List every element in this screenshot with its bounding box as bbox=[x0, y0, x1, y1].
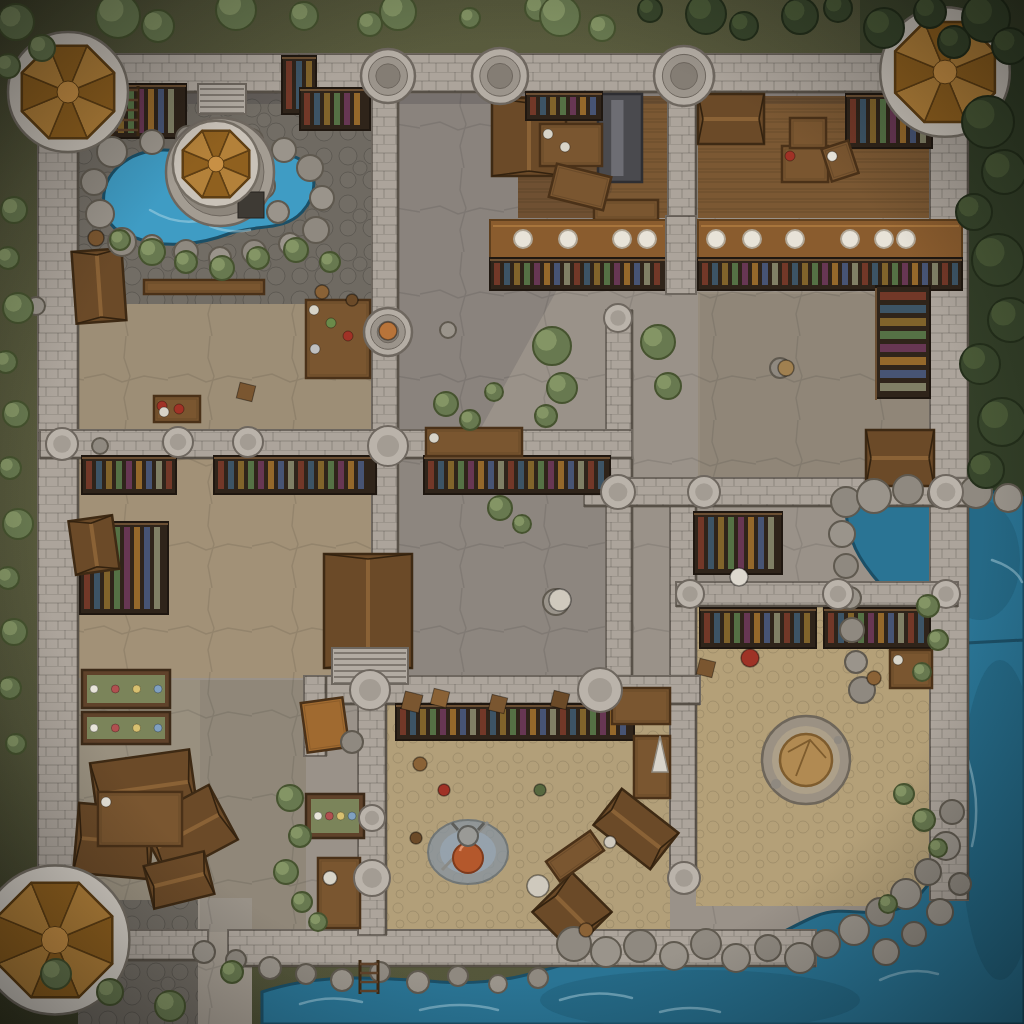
tree-21 bbox=[29, 35, 55, 61]
rock-32 bbox=[591, 937, 621, 967]
wall-inner-e bbox=[40, 430, 632, 458]
tree-51 bbox=[320, 252, 340, 272]
rock-37 bbox=[755, 935, 781, 961]
rock-33 bbox=[624, 930, 656, 962]
display-table-glass bbox=[306, 794, 364, 838]
tree-43 bbox=[97, 979, 123, 1005]
tree-44 bbox=[155, 991, 185, 1021]
house-room-floor bbox=[98, 792, 182, 846]
rock-36 bbox=[722, 944, 750, 972]
bench-topleft bbox=[144, 280, 264, 294]
roof-corner-west bbox=[68, 515, 119, 575]
tree-19 bbox=[938, 26, 970, 58]
tree-70 bbox=[913, 663, 931, 681]
tree-34 bbox=[0, 351, 17, 373]
tree-35 bbox=[3, 401, 29, 427]
rock-58 bbox=[489, 975, 507, 993]
tree-2 bbox=[216, 0, 256, 30]
tree-18 bbox=[992, 28, 1024, 64]
bookshelf-north3 bbox=[526, 92, 602, 120]
tree-60 bbox=[485, 383, 503, 401]
bookshelf-mid-1 bbox=[82, 456, 176, 494]
tree-48 bbox=[210, 256, 234, 280]
tree-11 bbox=[686, 0, 726, 34]
rock-27 bbox=[893, 475, 923, 505]
rock-39 bbox=[812, 930, 840, 958]
figure-southwest bbox=[323, 871, 337, 885]
item-barrel bbox=[413, 757, 427, 771]
roof-northeast-room bbox=[698, 94, 764, 144]
tree-63 bbox=[277, 785, 303, 811]
wall-cap-1 bbox=[163, 427, 193, 457]
rock-57 bbox=[448, 966, 468, 986]
tree-46 bbox=[139, 239, 165, 265]
tree-29 bbox=[978, 398, 1024, 446]
rock-49 bbox=[949, 873, 971, 895]
item-box bbox=[410, 832, 422, 844]
chimney-forge bbox=[598, 94, 642, 182]
boulder-dais bbox=[762, 716, 850, 804]
tree-50 bbox=[284, 238, 308, 262]
wall-inner-a-upper bbox=[372, 92, 398, 440]
tree-25 bbox=[956, 194, 992, 230]
shop-statue-orb bbox=[428, 820, 508, 884]
rock-48 bbox=[927, 899, 953, 925]
tree-39 bbox=[1, 619, 27, 645]
barrel-shop bbox=[527, 875, 549, 897]
tree-1 bbox=[142, 10, 174, 42]
counter-library-west bbox=[490, 220, 666, 290]
kettle-wall-f bbox=[730, 568, 748, 586]
tree-8 bbox=[540, 0, 580, 36]
battle-map-canvas bbox=[0, 0, 1024, 1024]
bookshelf-north2 bbox=[300, 88, 370, 130]
rock-30 bbox=[994, 484, 1022, 512]
tree-13 bbox=[782, 0, 818, 34]
rock-23 bbox=[840, 618, 864, 642]
display-case-1 bbox=[82, 670, 170, 708]
tree-56 bbox=[641, 325, 675, 359]
table-red bbox=[154, 396, 200, 422]
tree-40 bbox=[0, 677, 21, 699]
tree-57 bbox=[655, 373, 681, 399]
tree-15 bbox=[864, 8, 904, 48]
wall-cap-2 bbox=[233, 427, 263, 457]
wall-cap-5 bbox=[578, 668, 622, 712]
tree-36 bbox=[0, 457, 21, 479]
rock-11 bbox=[297, 155, 323, 181]
rock-56 bbox=[407, 971, 429, 993]
counter-library-east bbox=[698, 220, 962, 290]
tree-26 bbox=[972, 234, 1024, 286]
pot-topleft-2 bbox=[346, 294, 358, 306]
sack-east bbox=[778, 360, 794, 376]
wall-cap-14 bbox=[604, 304, 632, 332]
tree-22 bbox=[0, 54, 20, 78]
item-red bbox=[438, 784, 450, 796]
wall-west bbox=[38, 54, 78, 956]
tree-38 bbox=[0, 567, 19, 589]
tree-62 bbox=[513, 515, 531, 533]
rock-59 bbox=[528, 968, 548, 988]
crate-3 bbox=[488, 694, 507, 713]
tree-28 bbox=[960, 344, 1000, 384]
wall-cap-9 bbox=[823, 579, 853, 609]
turret-north-1 bbox=[361, 49, 415, 103]
tree-73 bbox=[929, 839, 947, 857]
rock-26 bbox=[857, 479, 891, 513]
throne-northeast bbox=[790, 118, 826, 148]
tree-52 bbox=[110, 230, 130, 250]
tree-0 bbox=[96, 0, 140, 38]
tree-3 bbox=[290, 2, 318, 30]
wall-cap-12 bbox=[354, 860, 390, 896]
tree-10 bbox=[638, 0, 662, 22]
pond-gazebo bbox=[166, 118, 274, 226]
rock-50 bbox=[193, 941, 215, 963]
tree-27 bbox=[988, 298, 1024, 342]
box-court bbox=[236, 382, 255, 401]
rock-19 bbox=[831, 487, 861, 517]
tree-14 bbox=[824, 0, 852, 22]
rock-10 bbox=[310, 186, 334, 210]
table-north-room bbox=[540, 124, 602, 166]
tree-72 bbox=[913, 809, 935, 831]
crate-1 bbox=[401, 691, 423, 713]
rock-21 bbox=[834, 554, 858, 578]
tree-9 bbox=[589, 15, 615, 41]
rock-47 bbox=[902, 922, 926, 946]
tree-67 bbox=[309, 913, 327, 931]
tree-33 bbox=[3, 293, 33, 323]
turret-north-3 bbox=[654, 46, 714, 106]
rock-38 bbox=[785, 943, 815, 973]
rock-45 bbox=[940, 800, 964, 824]
tree-45 bbox=[221, 961, 243, 983]
stairs-northwest bbox=[198, 84, 246, 114]
battle-map bbox=[0, 0, 1024, 1024]
item-sack bbox=[579, 923, 593, 937]
wall-cap-3 bbox=[368, 426, 408, 466]
rock-16 bbox=[140, 130, 164, 154]
tree-71 bbox=[894, 784, 914, 804]
tree-16 bbox=[914, 0, 946, 28]
bookshelf-midright bbox=[694, 512, 782, 574]
tree-74 bbox=[879, 895, 897, 913]
crate-2 bbox=[430, 688, 449, 707]
tree-55 bbox=[535, 405, 557, 427]
crate-southeast bbox=[696, 658, 715, 677]
bookshelf-mid-3 bbox=[424, 456, 610, 494]
rock-35 bbox=[691, 929, 721, 959]
bookshelf-southeast-1 bbox=[700, 608, 816, 648]
wall-cap-4 bbox=[350, 670, 390, 710]
pot-topleft-1 bbox=[315, 285, 329, 299]
rock-34 bbox=[660, 942, 688, 970]
tree-6 bbox=[460, 8, 480, 28]
wall-inner-f bbox=[676, 582, 958, 606]
tree-37 bbox=[3, 509, 33, 539]
tree-61 bbox=[488, 496, 512, 520]
brazier-turret bbox=[379, 322, 397, 340]
tree-31 bbox=[1, 197, 27, 223]
item-pot bbox=[604, 836, 616, 848]
display-case-2 bbox=[82, 712, 170, 744]
red-satchel bbox=[741, 649, 759, 667]
tree-53 bbox=[533, 327, 571, 365]
tree-49 bbox=[247, 247, 269, 269]
tree-59 bbox=[460, 410, 480, 430]
boulder-court bbox=[549, 589, 571, 611]
rock-24 bbox=[845, 651, 867, 673]
bookshelf-east-column bbox=[876, 286, 930, 400]
rock-18 bbox=[267, 201, 289, 223]
wall-cap-6 bbox=[601, 475, 635, 509]
rock-43 bbox=[915, 859, 941, 885]
rock-54 bbox=[331, 969, 353, 991]
rock-52 bbox=[259, 957, 281, 979]
wall-cap-8 bbox=[929, 475, 963, 509]
wall-cap-0 bbox=[46, 428, 78, 460]
counter-pillar bbox=[666, 216, 696, 294]
rock-20 bbox=[829, 521, 855, 547]
tree-4 bbox=[358, 12, 382, 36]
wall-cap-10 bbox=[676, 580, 704, 608]
rock-63 bbox=[341, 731, 363, 753]
rock-9 bbox=[303, 217, 329, 243]
tree-68 bbox=[917, 595, 939, 617]
item-green bbox=[534, 784, 546, 796]
tree-66 bbox=[292, 892, 312, 912]
rock-1 bbox=[81, 169, 107, 195]
wall-cap-11 bbox=[668, 862, 700, 894]
shed-topleft bbox=[72, 248, 127, 323]
pot-southeast bbox=[867, 671, 881, 685]
tree-23 bbox=[962, 96, 1014, 148]
rock-2 bbox=[86, 200, 114, 228]
tree-20 bbox=[0, 4, 34, 40]
tower-northwest bbox=[8, 32, 128, 152]
tree-32 bbox=[0, 247, 19, 269]
tree-64 bbox=[289, 825, 311, 847]
counter-mid bbox=[426, 428, 522, 456]
tree-24 bbox=[982, 150, 1024, 194]
rock-12 bbox=[272, 138, 296, 162]
rock-65 bbox=[92, 438, 108, 454]
crate-4 bbox=[550, 690, 569, 709]
tree-30 bbox=[968, 452, 1004, 488]
turret-north-2 bbox=[472, 48, 528, 104]
tree-41 bbox=[6, 734, 26, 754]
wall-cap-7 bbox=[688, 476, 720, 508]
wall-cap-15 bbox=[359, 805, 385, 831]
worktable-alchemy bbox=[306, 300, 370, 378]
rock-40 bbox=[839, 915, 869, 945]
rock-46 bbox=[873, 939, 899, 965]
barrel-topleft bbox=[88, 230, 104, 246]
tree-12 bbox=[730, 12, 758, 40]
tree-54 bbox=[547, 373, 577, 403]
tree-65 bbox=[274, 860, 298, 884]
tree-42 bbox=[41, 959, 71, 989]
rock-62 bbox=[440, 322, 456, 338]
rock-53 bbox=[296, 964, 316, 984]
bookshelf-mid-2 bbox=[214, 456, 376, 494]
tree-5 bbox=[380, 0, 416, 30]
tree-69 bbox=[928, 630, 948, 650]
tree-47 bbox=[175, 251, 197, 273]
tree-58 bbox=[434, 392, 458, 416]
